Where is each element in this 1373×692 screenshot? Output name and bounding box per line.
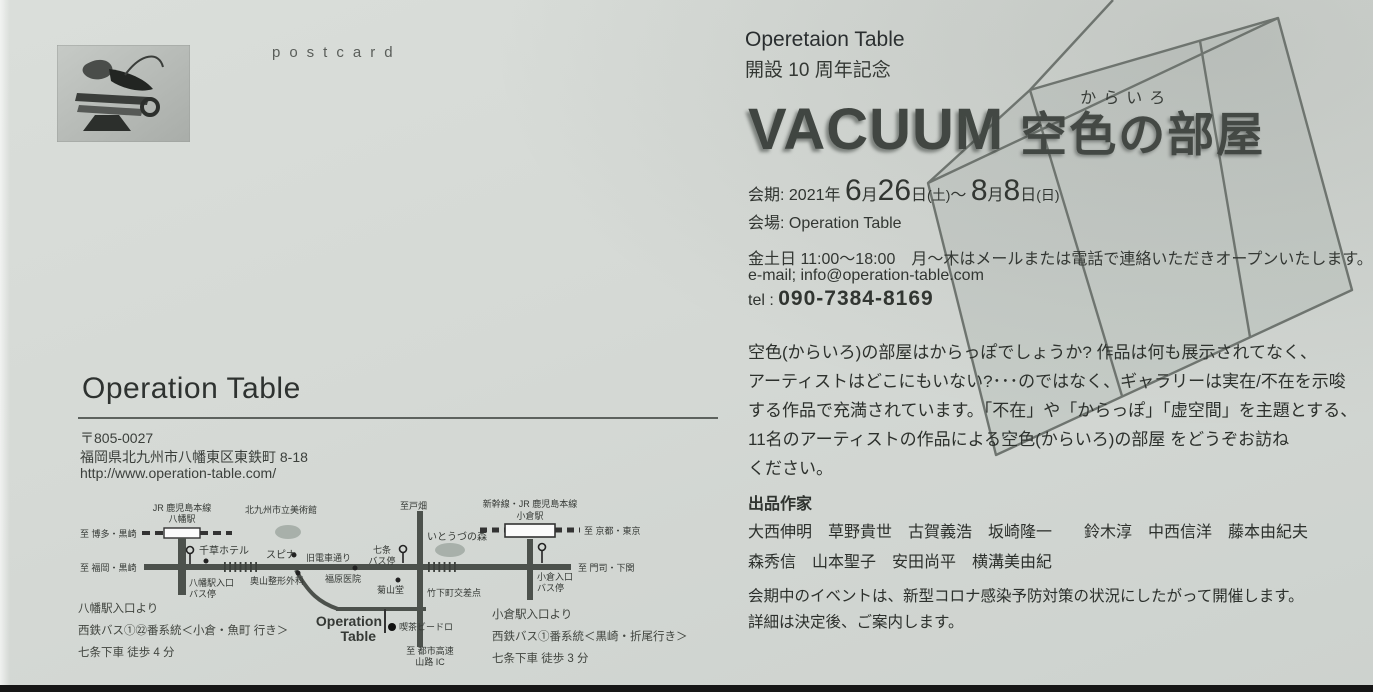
dates-unit: 月 [862, 187, 878, 204]
map-label-vidro: 喫茶ビードロ [399, 621, 453, 632]
access-yahata-line-2: 西鉄バス①㉒番系統＜小倉・魚町 行き＞ [78, 620, 288, 642]
map-label-jr-line: JR 鹿児島本線 [153, 502, 212, 513]
artists-row-2: 森秀信 山本聖子 安田尚平 横溝美由紀 [748, 548, 1052, 572]
dates-day-start: 26 [878, 174, 911, 207]
opening-hours: 金土日 11:00～18:00 月～木はメールまたは電話で連絡いただきオープンい… [748, 245, 1373, 269]
exhibition-title: VACUUM からいろ 空色の部屋 [748, 84, 1265, 159]
access-kokura-line-3: 七条下車 徒歩 3 分 [492, 648, 688, 670]
map-label-takeshita: 竹下町交差点 [427, 587, 481, 598]
postcard-front: postcard Operetaion Table 開設 10 周年記念 VAC… [0, 0, 1373, 692]
map-label-kyudensha: 旧電車通り [306, 552, 351, 563]
covid-notice-line-1: 会期中のイベントは、新型コロナ感染予防対策の状況にしたがって開催します。 [748, 584, 1304, 606]
dates-unit: 日 [911, 187, 927, 204]
bus-stop-icon-shichijo [400, 546, 407, 564]
title-japanese: 空色の部屋 [1020, 110, 1265, 159]
access-yahata-line-3: 七条下車 徒歩 4 分 [78, 642, 288, 664]
tel-number: 090-7384-8169 [778, 287, 933, 310]
telephone: tel : 090-7384-8169 [748, 287, 934, 311]
street-address: 福岡県北九州市八幡東区東鉄町 8-18 [80, 447, 308, 467]
map-label-kikusando: 菊山堂 [377, 584, 404, 595]
statement-line: ください。 [748, 454, 1373, 483]
map-label-spina: スピナ [266, 549, 296, 561]
map-label-kyoto-tokyo: 至 京都・東京 [584, 525, 641, 536]
anniversary-line: 開設 10 周年記念 [745, 55, 891, 82]
map-label-shichijo-2: バス停 [368, 555, 395, 566]
postcard-label: postcard [272, 44, 402, 61]
venue-line: 会場: Operation Table [748, 209, 902, 233]
statement-line: アーティストはどこにもいない?･･･のではなく、ギャラリーは実在/不在を示唆 [748, 367, 1373, 396]
map-label-fukuhara: 福原医院 [325, 573, 361, 584]
title-furigana: からいろ [1080, 84, 1172, 108]
map-label-moji: 至 門司・下関 [578, 563, 635, 573]
statement-line: 11名のアーティストの作品による空色(からいろ)の部屋 をどうぞお訪ね [748, 425, 1373, 454]
website-url: http://www.operation-table.com/ [80, 465, 276, 481]
dates-unit: 月 [988, 187, 1004, 204]
access-kokura-line-2: 西鉄バス①番系統＜黒崎・折尾行き＞ [492, 626, 688, 648]
covid-notice-line-2: 詳細は決定後、ご案内します。 [748, 610, 963, 632]
postal-code: 〒805-0027 [80, 428, 153, 448]
map-label-fukuoka: 至 福岡・黒崎 [80, 562, 137, 573]
artists-heading: 出品作家 [748, 490, 812, 514]
statement-line: する作品で充満されています。「不在」や「からっぽ」「虚空間」を主題とする、 [748, 396, 1373, 425]
map-label-operation: Operation [316, 613, 382, 629]
dot-chigusa [204, 559, 209, 564]
map-label-expressway-1: 至 都市高速 [406, 645, 454, 656]
map-label-kokura-bus-2: バス停 [537, 582, 564, 593]
map-label-yahata-bus-1: 八幡駅入口 [189, 577, 234, 588]
map-label-table: Table [340, 628, 376, 644]
map-label-tobata: 至戸畑 [400, 500, 427, 511]
dates-unit: 日 [1020, 187, 1036, 204]
photo-bottom-edge [0, 685, 1373, 692]
statement-line: 空色(からいろ)の部屋はからっぽでしょうか? 作品は何も展示されてなく、 [748, 338, 1373, 367]
dates-tilde: ～ [950, 187, 966, 204]
gallery-name: Operation Table [82, 372, 301, 406]
dot-okuyama [296, 571, 301, 576]
title-english: VACUUM [748, 101, 1004, 159]
access-info-yahata: 八幡駅入口より 西鉄バス①㉒番系統＜小倉・魚町 行き＞ 七条下車 徒歩 4 分 [78, 598, 288, 664]
map-label-museum: 北九州市立美術館 [245, 504, 317, 515]
exhibition-dates: 会期: 2021年 6月26日(土)～ 8月8日(日) [748, 176, 1060, 206]
tel-label: tel : [748, 292, 778, 309]
bus-stop-icon-chigusa [187, 547, 194, 565]
map-label-kokura-bus-1: 小倉入口 [537, 571, 573, 582]
exhibition-statement: 空色(からいろ)の部屋はからっぽでしょうか? 作品は何も展示されてなく、 アーテ… [748, 338, 1373, 483]
access-kokura-line-1: 小倉駅入口より [492, 604, 688, 626]
map-label-yahata-station: 八幡駅 [168, 513, 195, 524]
museum-area [275, 525, 301, 539]
divider-rule [78, 417, 718, 419]
dot-fukuhara [353, 566, 358, 571]
map-label-chigusa-hotel: 千草ホテル [199, 545, 249, 557]
map-label-kokura-station: 小倉駅 [516, 510, 543, 521]
map-label-itozu: いとうづの森 [427, 530, 487, 543]
dates-month-start: 6 [845, 174, 862, 207]
dates-weekday-end: (日) [1036, 187, 1059, 203]
dates-month-end: 8 [971, 174, 988, 207]
map-label-shinkansen: 新幹線・JR 鹿児島本線 [483, 498, 578, 509]
dates-day-end: 8 [1004, 174, 1021, 207]
email-address: e-mail; info@operation-table.com [748, 267, 984, 285]
itozu-area [435, 543, 465, 557]
logo-photo [57, 45, 190, 142]
dot-kikusando [396, 578, 401, 583]
bus-stop-icon-kokura [539, 544, 546, 564]
map-label-shichijo-1: 七条 [373, 544, 391, 555]
access-info-kokura: 小倉駅入口より 西鉄バス①番系統＜黒崎・折尾行き＞ 七条下車 徒歩 3 分 [492, 604, 688, 670]
yahata-station-box [164, 528, 200, 538]
artists-row-1: 大西伸明 草野貴世 古賀義浩 坂崎隆一 鈴木淳 中西信洋 藤本由紀夫 [748, 518, 1308, 542]
dates-prefix: 会期: 2021年 [748, 187, 841, 204]
dates-weekday-start: (土) [927, 187, 950, 203]
map-label-expressway-2: 山路 IC [415, 656, 445, 667]
kokura-station-box [505, 524, 555, 537]
access-yahata-line-1: 八幡駅入口より [78, 598, 288, 620]
organizer-name: Operetaion Table [745, 28, 905, 52]
map-label-hakata: 至 博多・黒崎 [80, 528, 137, 539]
map-label-okuyama: 奥山整形外科 [250, 575, 304, 586]
venue-dot [388, 623, 396, 631]
